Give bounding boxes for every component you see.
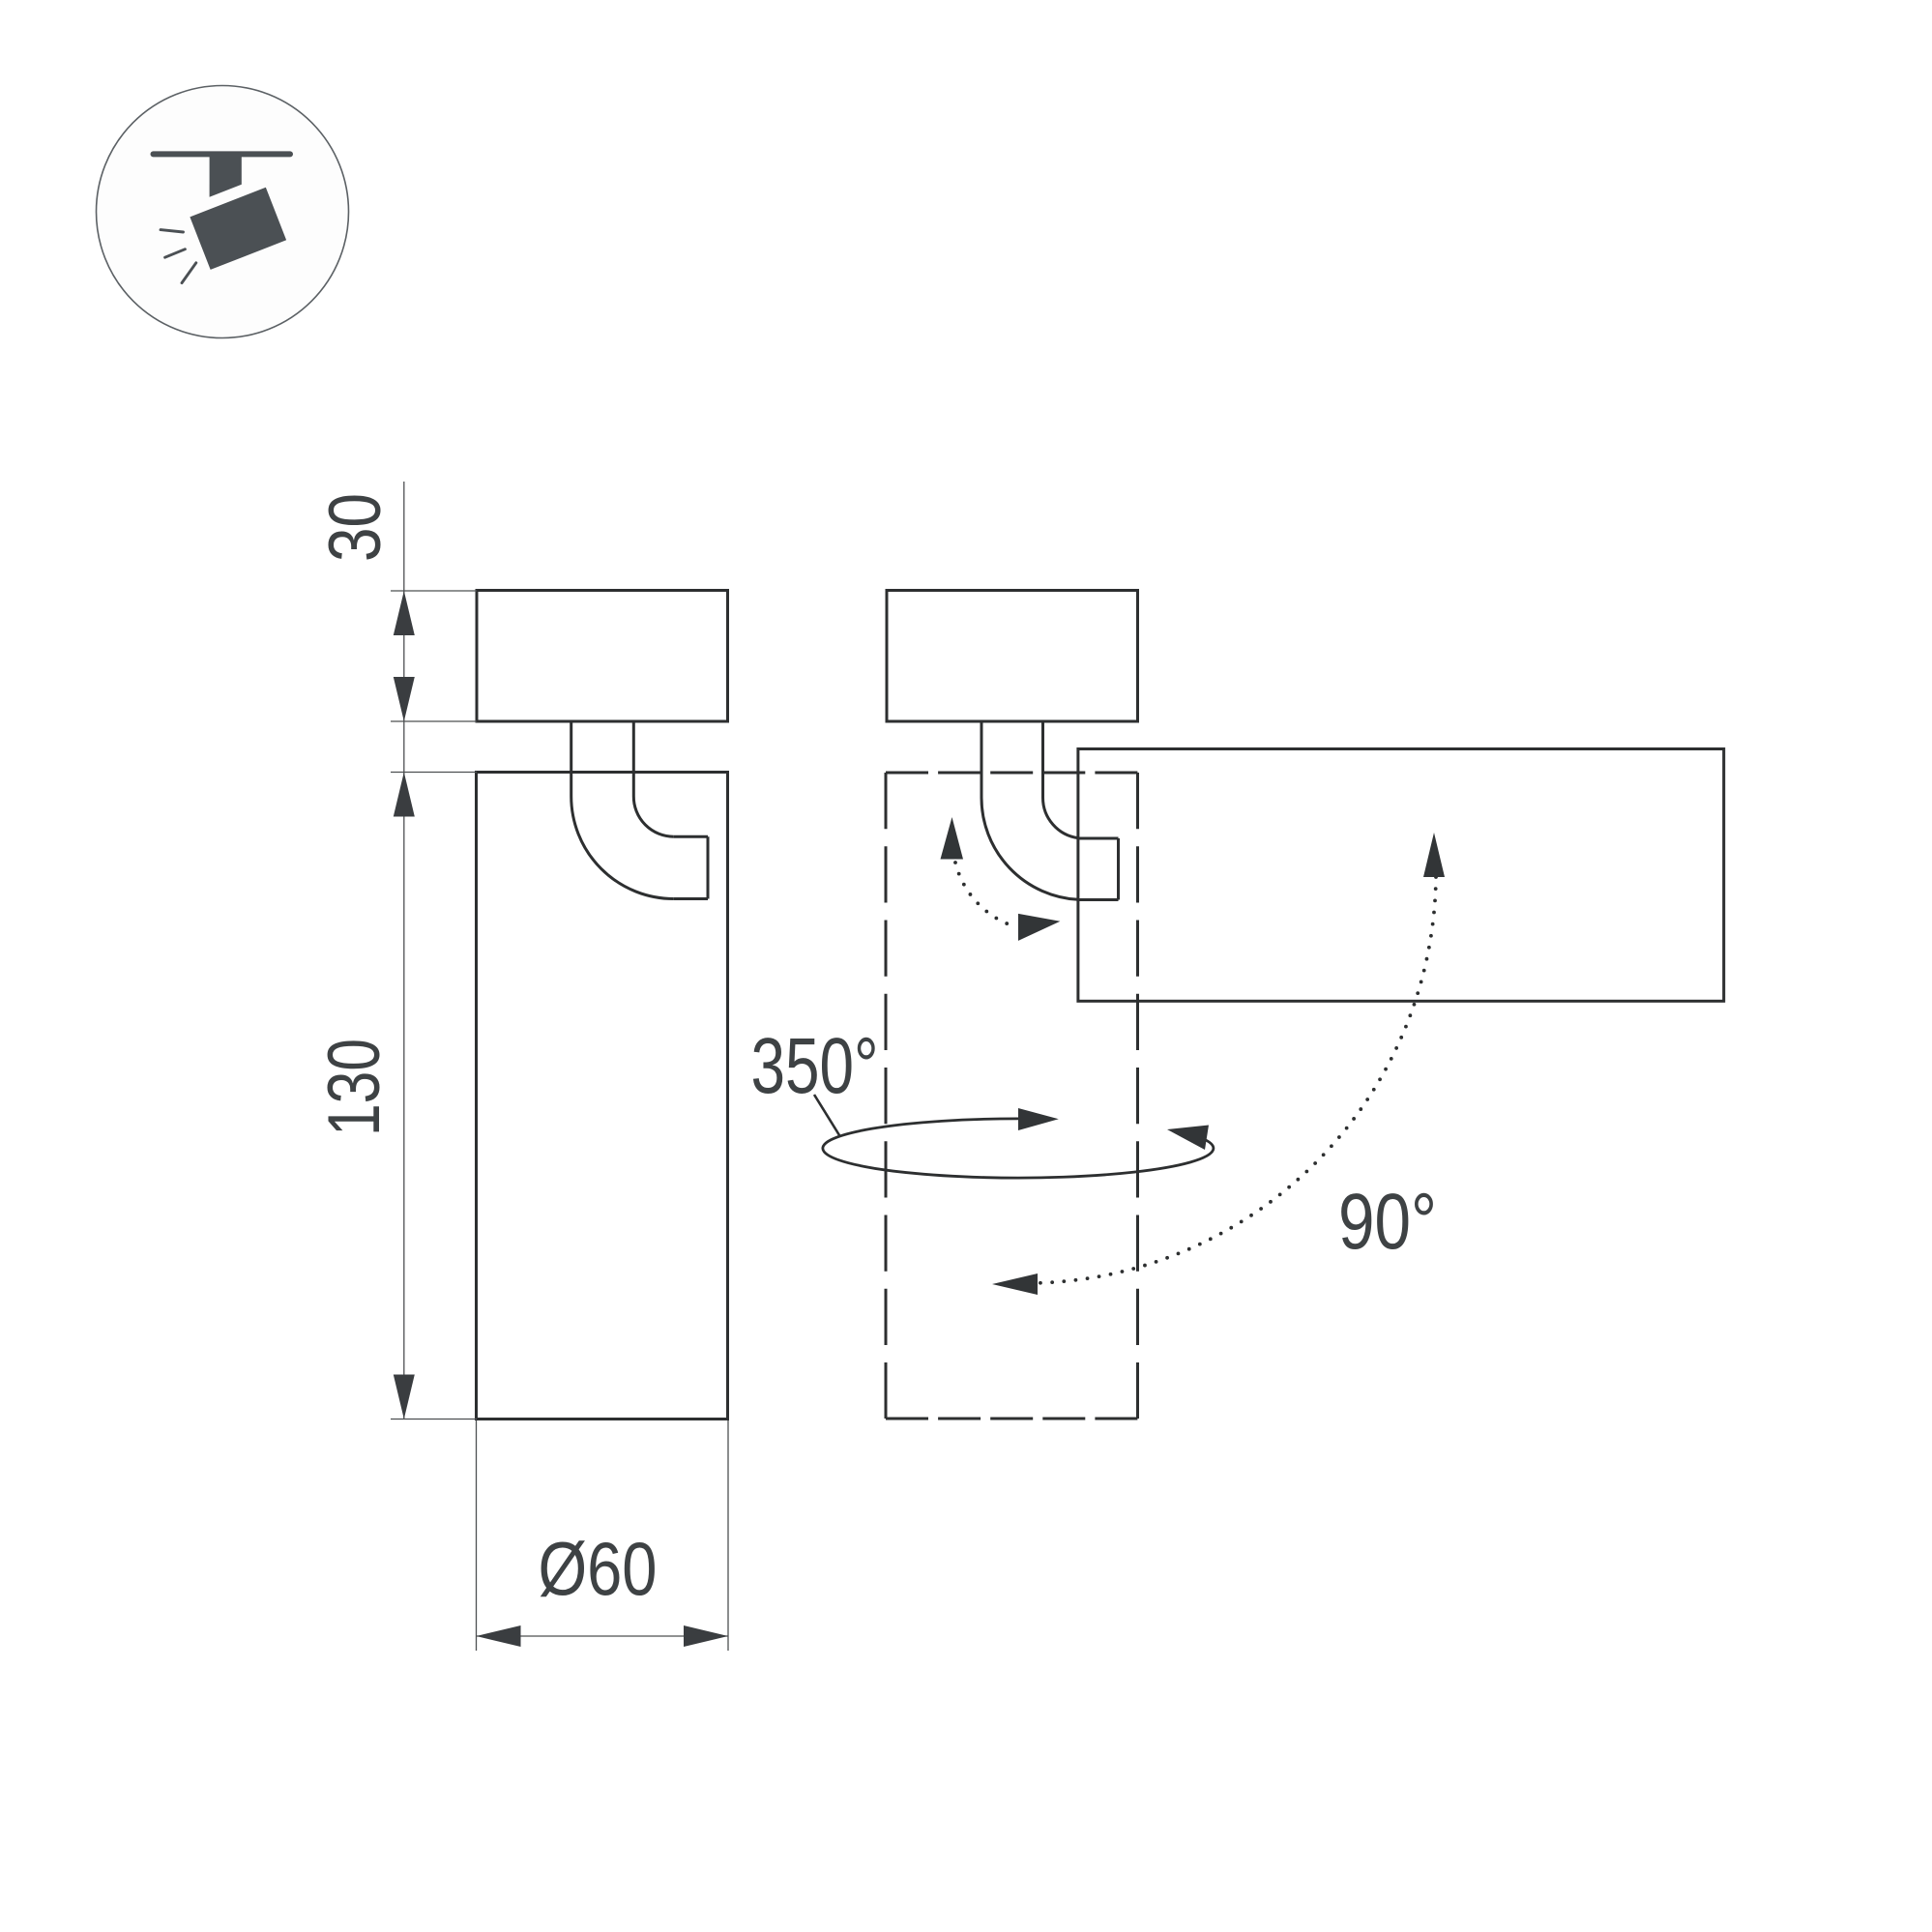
svg-text:90°: 90° [1338, 1178, 1437, 1266]
svg-text:130: 130 [313, 1039, 395, 1136]
svg-text:Ø60: Ø60 [539, 1526, 658, 1611]
svg-text:30: 30 [314, 493, 396, 562]
svg-text:350°: 350° [751, 1022, 879, 1110]
